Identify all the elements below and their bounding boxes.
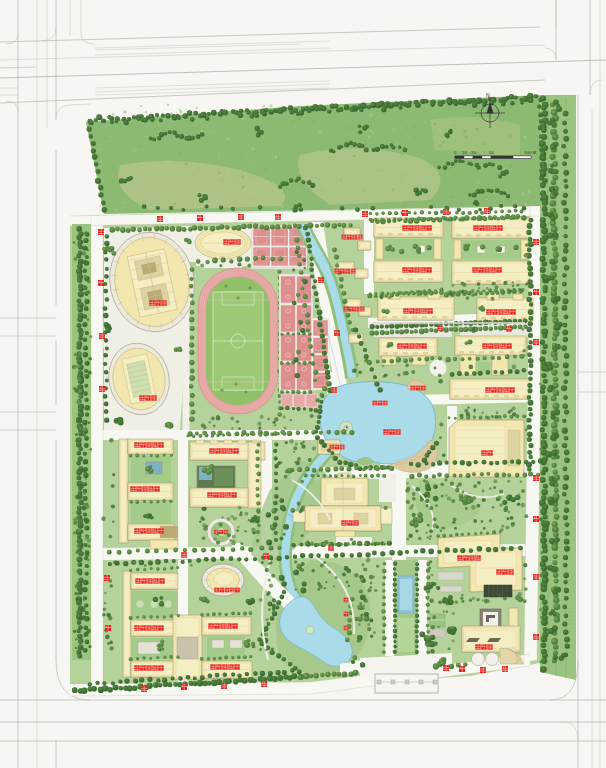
svg-text:100 M: 100 M [524, 150, 537, 155]
svg-text:20: 20 [471, 150, 476, 155]
svg-text:10: 10 [462, 150, 467, 155]
svg-text:50: 50 [489, 150, 494, 155]
svg-text:N: N [486, 92, 490, 98]
